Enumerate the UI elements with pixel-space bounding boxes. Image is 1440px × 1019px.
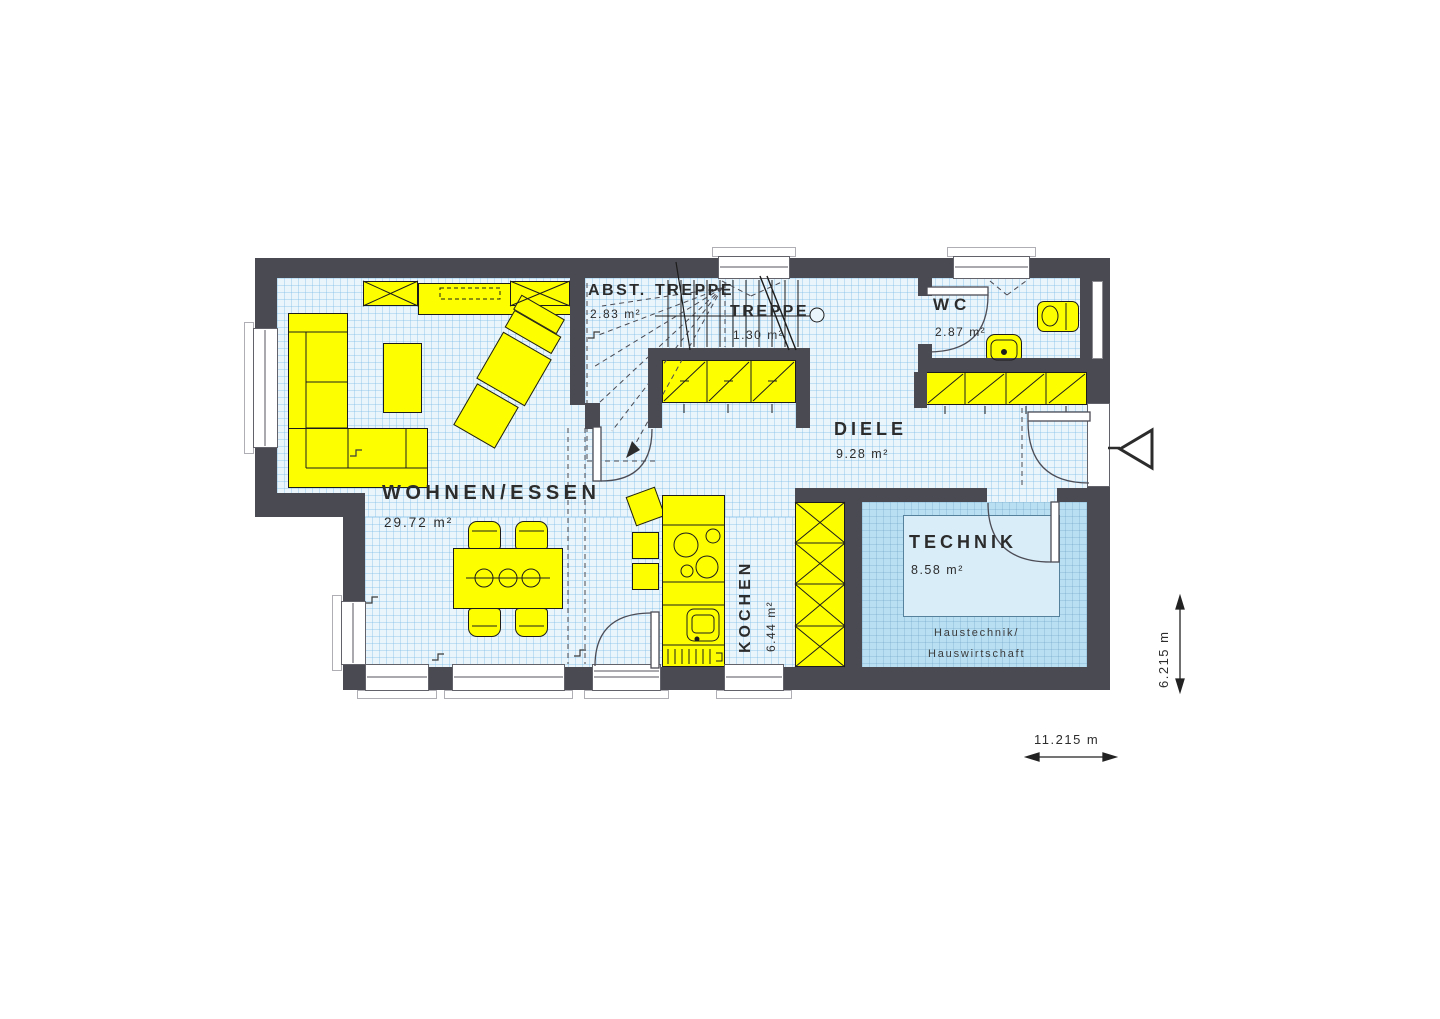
window	[724, 664, 784, 691]
dining-table	[453, 548, 563, 609]
sofa-horizontal-arm	[288, 428, 428, 488]
wall-segment	[1057, 488, 1093, 502]
wall-segment	[918, 278, 932, 296]
window	[365, 664, 429, 691]
kitchen-counter	[662, 495, 725, 667]
wardrobe-hall	[925, 372, 1087, 405]
sideboard-crate-left	[363, 281, 418, 306]
installation-shaft	[1092, 281, 1103, 359]
wall-segment	[914, 372, 927, 408]
room-label-wohnen: WOHNEN/ESSEN	[382, 482, 600, 505]
area-label-wc: 2.87 m²	[935, 325, 986, 339]
area-label-technik: 8.58 m²	[911, 563, 964, 577]
wall-segment	[255, 493, 365, 517]
room-label-abst: ABST.	[588, 282, 647, 300]
wall-segment	[648, 348, 662, 428]
area-label-diele: 9.28 m²	[836, 447, 889, 461]
entrance-arrow-icon	[1108, 430, 1152, 468]
wall-segment	[795, 488, 987, 502]
window	[718, 256, 790, 279]
entrance-door-opening	[1087, 403, 1110, 487]
terrace-door	[592, 664, 661, 691]
coffee-table	[383, 343, 422, 413]
tall-cabinet	[795, 502, 845, 667]
wall-segment	[1087, 485, 1110, 690]
dining-chair	[515, 521, 548, 550]
room-label-treppe: TREPPE	[730, 303, 809, 321]
room-label-wc: WC	[933, 295, 971, 315]
room-label-kochen: KOCHEN	[737, 560, 755, 653]
dimension-width-label: 11.215 m	[1034, 732, 1099, 747]
wall-segment	[585, 403, 600, 429]
window	[253, 328, 278, 448]
wall-segment	[570, 278, 585, 405]
area-label-treppe: 1.30 m²	[733, 328, 784, 342]
window	[341, 601, 366, 665]
area-label-kochen: 6.44 m²	[764, 601, 778, 652]
window-sill	[716, 690, 792, 699]
wall-segment	[796, 348, 810, 428]
room-label-diele: DIELE	[834, 419, 907, 440]
floor-plan: WOHNEN/ESSEN 29.72 m² ABST. TREPPE 2.83 …	[0, 0, 1440, 1019]
room-label-technik: TECHNIK	[909, 532, 1017, 553]
kitchen-stool	[632, 563, 659, 590]
area-label-abst: 2.83 m²	[590, 307, 641, 321]
toilet	[1037, 301, 1079, 332]
wall-segment	[918, 358, 1090, 372]
dining-chair	[468, 608, 501, 637]
window	[953, 256, 1030, 279]
window-sill	[584, 690, 669, 699]
window-sill	[357, 690, 437, 699]
wall-segment	[845, 488, 862, 690]
window-sill	[444, 690, 573, 699]
dining-chair	[515, 608, 548, 637]
dimension-depth-label: 6.215 m	[1156, 631, 1171, 688]
room-label-treppe-upper: TREPPE	[655, 282, 734, 300]
technik-note-line2: Hauswirtschaft	[928, 648, 1025, 660]
dining-chair	[468, 521, 501, 550]
wall-segment	[648, 348, 810, 360]
technik-note-line1: Haustechnik/	[934, 627, 1019, 639]
window	[452, 664, 565, 691]
kitchen-stool	[632, 532, 659, 559]
wardrobe-under-stairs	[662, 360, 796, 403]
area-label-wohnen: 29.72 m²	[384, 515, 453, 530]
